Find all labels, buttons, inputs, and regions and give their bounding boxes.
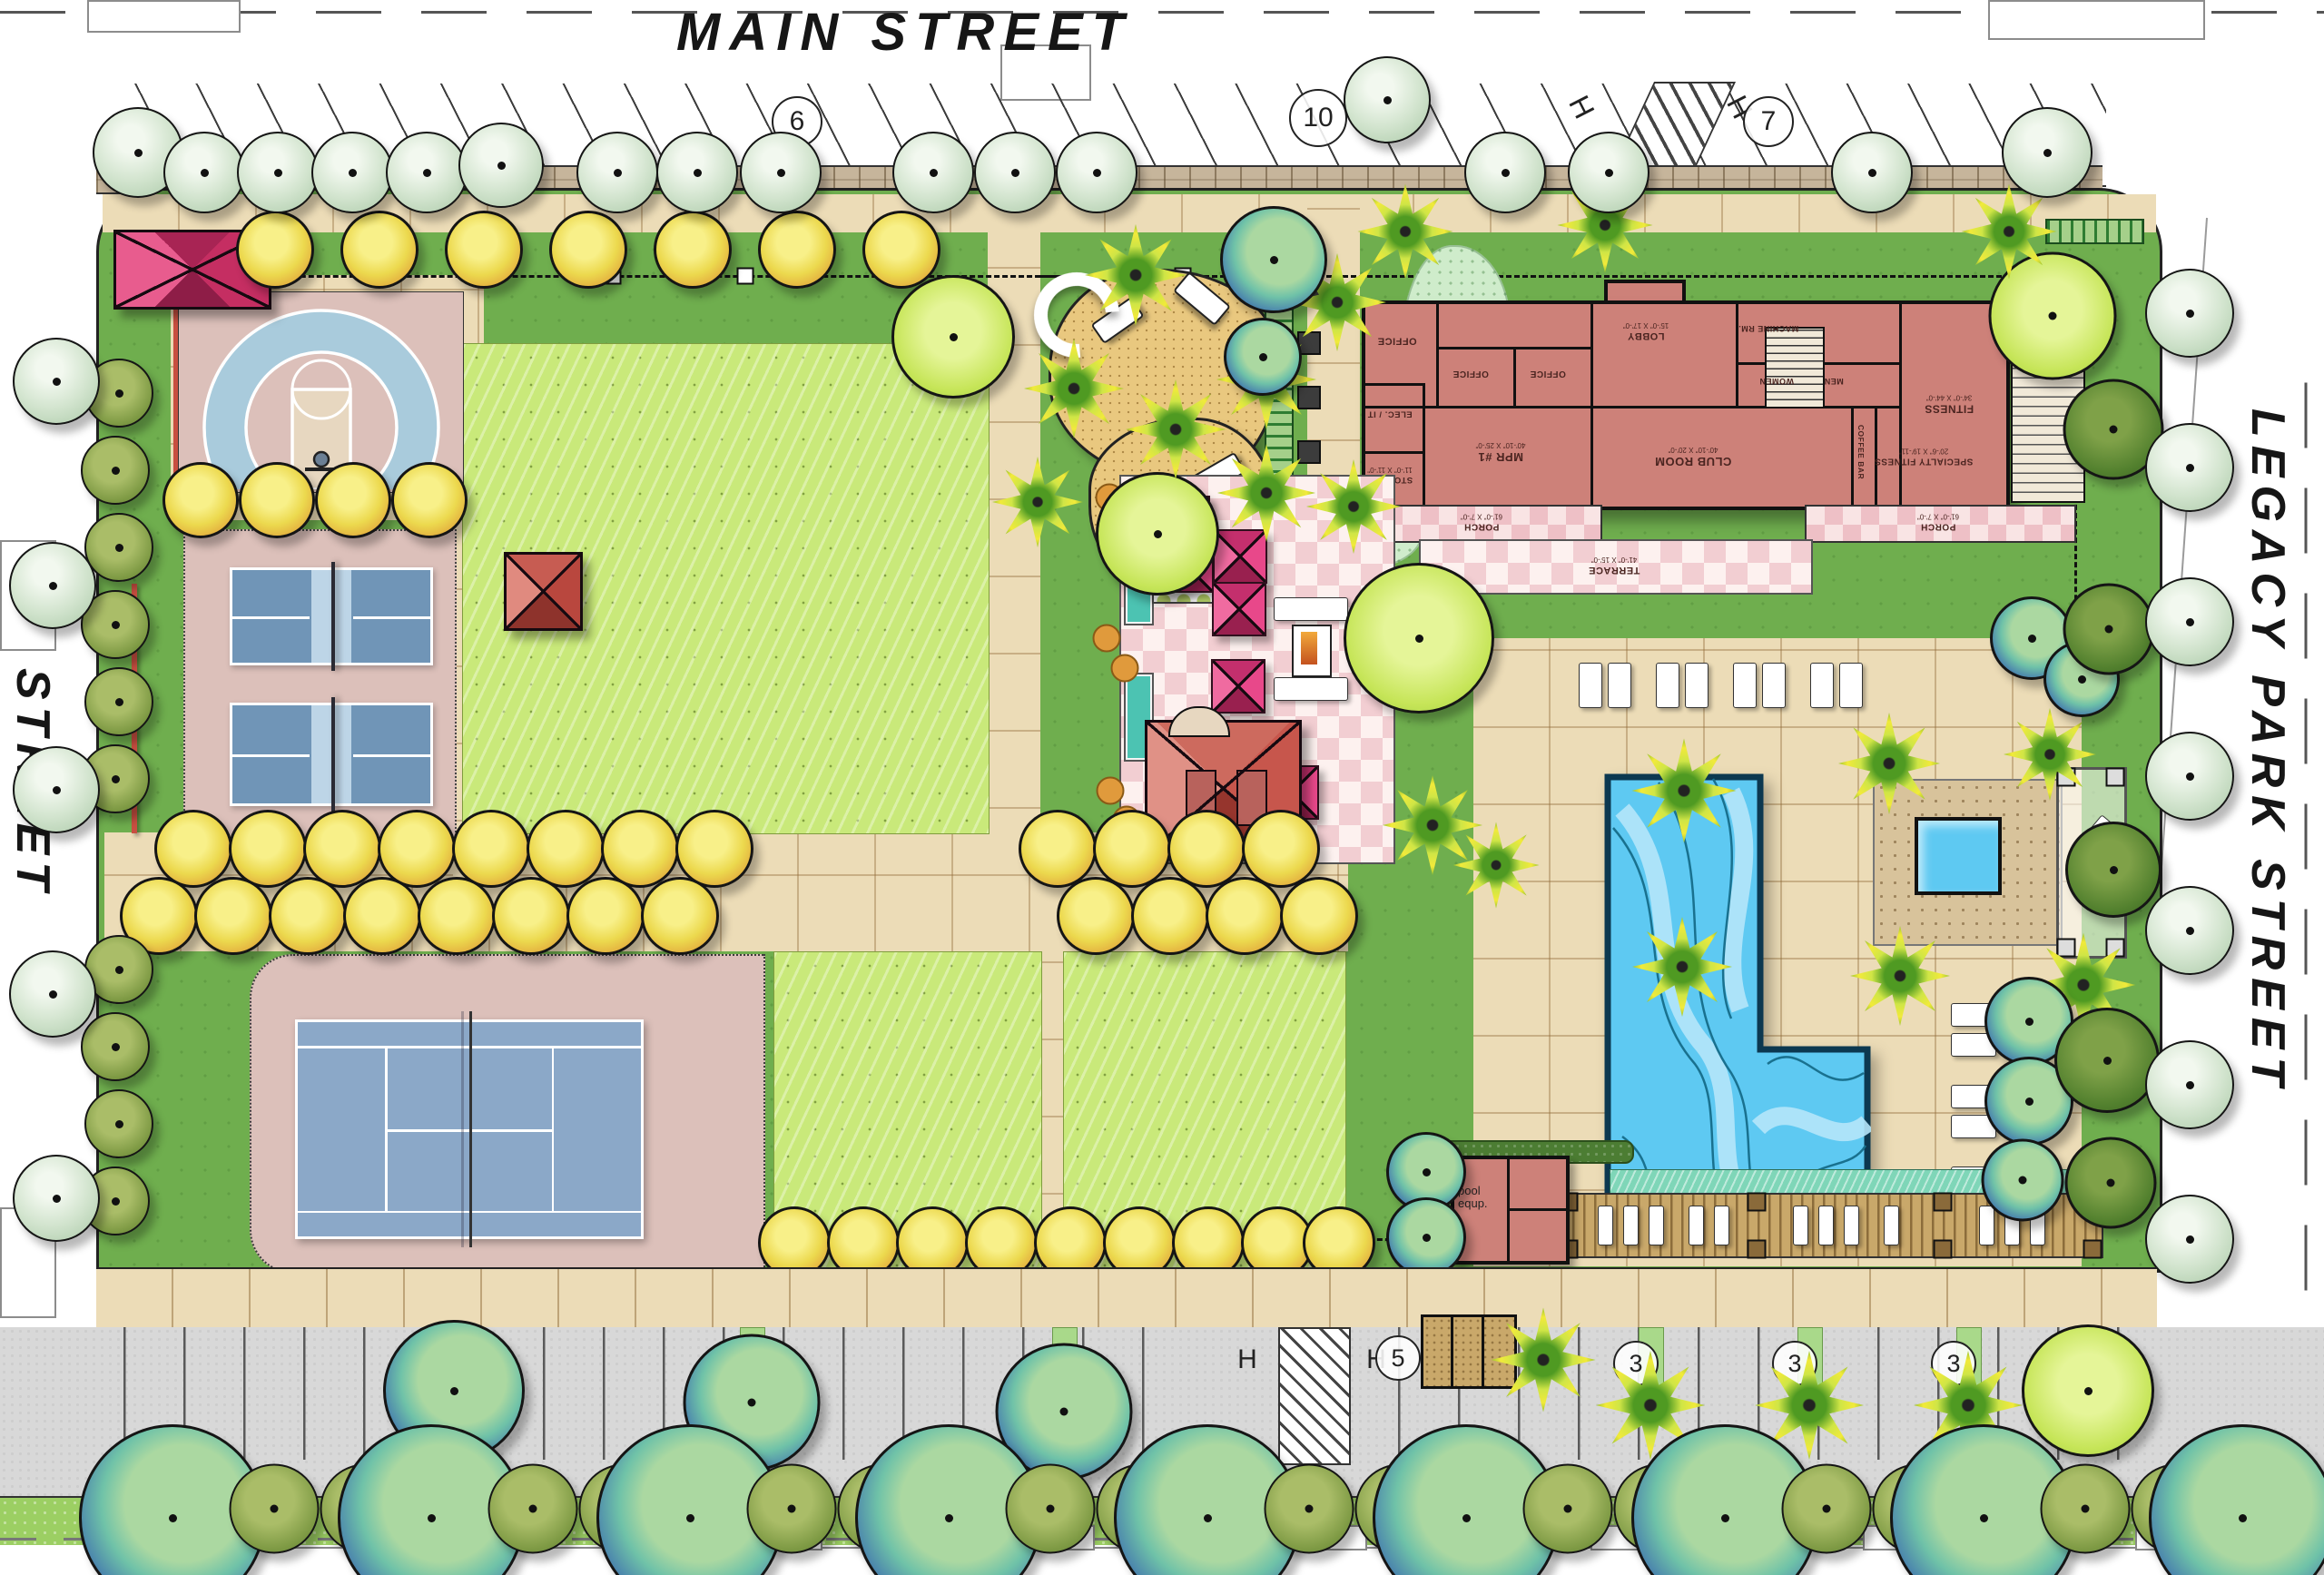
lounge-chair (1714, 1206, 1729, 1245)
ornamental-tree (1224, 318, 1302, 396)
bbq-grill (1297, 440, 1321, 464)
lounge-chair (1608, 663, 1631, 708)
shade-tree (269, 877, 347, 955)
canopy-tree (2022, 1324, 2154, 1457)
shade-tree (229, 810, 307, 888)
shade-tree (492, 877, 570, 955)
palm-tree (1085, 224, 1187, 326)
lounge-sofa (1274, 677, 1348, 701)
shade-tree (340, 211, 419, 289)
shade-tree (1167, 810, 1246, 888)
stall-count-badge: 10 (1289, 89, 1347, 147)
street-label-legacy-park: LEGACY PARK STREET (2240, 409, 2295, 1094)
shade-tree (418, 877, 496, 955)
terrace-label: TERRACE41'-0" X 15'-0" (1589, 556, 1640, 576)
palm-tree (1838, 713, 1940, 814)
lounge-chair (1818, 1206, 1834, 1245)
spa (1915, 817, 2002, 895)
stall-count-badge: 5 (1375, 1335, 1421, 1381)
fruit-tree (1093, 625, 1121, 653)
parkway-tree (1006, 1464, 1096, 1554)
street-tree (9, 950, 96, 1038)
court-line (353, 616, 430, 619)
wall (1451, 1317, 1453, 1386)
pickleball-court (230, 703, 433, 806)
lounge-chair (1979, 1206, 1994, 1245)
umbrella-table (1213, 529, 1267, 584)
tennis-court (295, 1019, 644, 1239)
pergola-post (1934, 1240, 1953, 1259)
street-tree (386, 132, 468, 213)
room-label-office: OFFICE (1377, 335, 1416, 347)
handicap-hatch-bottom (1278, 1327, 1351, 1465)
curb-box (87, 0, 241, 33)
lounge-chair (1839, 663, 1863, 708)
shade-tree (391, 462, 468, 538)
vine-trellis (2045, 219, 2144, 244)
porch-label: PORCH61'-0" X 7'-0" (1917, 513, 1959, 532)
palm-tree (2004, 708, 2096, 801)
trellis-post (2057, 939, 2076, 958)
palm-tree (1632, 917, 1732, 1017)
shade-tree (1057, 877, 1135, 955)
parkway-tree (2041, 1464, 2131, 1554)
street-centerline (0, 11, 2324, 14)
lounge-chair (1598, 1206, 1613, 1245)
street-tree (13, 746, 100, 833)
shade-tree (239, 462, 315, 538)
street-tree (2145, 1195, 2234, 1284)
lounge-chair (1649, 1206, 1664, 1245)
street-tree (2145, 577, 2234, 666)
parkway-tree (747, 1464, 837, 1554)
palm-tree (1217, 444, 1315, 542)
shade-tree (452, 810, 530, 888)
palm-tree (1358, 184, 1453, 280)
room-label-men: MEN (1824, 377, 1844, 386)
lounge-chair (1793, 1206, 1808, 1245)
shade-tree (549, 211, 627, 289)
street-tree (13, 1155, 100, 1242)
outdoor-fireplace (1292, 625, 1332, 677)
street-tree (1568, 132, 1649, 213)
street-tree (237, 132, 319, 213)
shade-tree (1280, 877, 1358, 955)
shade-tree (162, 462, 239, 538)
wall (1423, 383, 1425, 507)
mail-kiosk (1421, 1314, 1517, 1389)
evergreen-tree (81, 1012, 150, 1081)
palm-tree (1492, 1308, 1596, 1413)
shade-tree (566, 877, 645, 955)
street-tree (656, 132, 738, 213)
lounge-chair (1762, 663, 1786, 708)
parkway-tree (1265, 1464, 1354, 1554)
parkway-tree (230, 1464, 320, 1554)
room-label-office: OFFICE (1452, 368, 1489, 379)
shade-tree (1019, 810, 1097, 888)
room-label-club-room: CLUB ROOM40'-10" X 20'-0" (1655, 446, 1732, 468)
shade-tree (675, 810, 753, 888)
park-site: OFFICE OFFICE OFFICE ELEC. / IT STORAGE1… (96, 188, 2162, 1273)
shade-tree (758, 211, 836, 289)
shade-tree (236, 211, 314, 289)
evergreen-tree (81, 436, 150, 505)
palm-tree (992, 457, 1083, 547)
palm-tree (1126, 379, 1226, 479)
lounge-chair (1810, 663, 1834, 708)
street-tree (740, 132, 822, 213)
street-tree (1464, 132, 1546, 213)
parkway-tree (488, 1464, 578, 1554)
street-tree (2145, 886, 2234, 975)
trellis-post (2106, 768, 2125, 787)
street-tree (2145, 732, 2234, 821)
shade-gazebo (504, 552, 583, 631)
room-label-lobby: LOBBY15'-0" X 17'-0" (1623, 321, 1669, 341)
palm-tree (1024, 339, 1124, 438)
fire-glow (1301, 632, 1317, 664)
shade-tree (654, 211, 732, 289)
shade-tree (303, 810, 381, 888)
parkway-tree (1523, 1464, 1613, 1554)
pergola-post (1748, 1240, 1767, 1259)
shade-tree (343, 877, 421, 955)
handicap-marker: H (1237, 1344, 1257, 1375)
room-label-mpr: MPR #140'-10" X 25'-0" (1476, 441, 1526, 463)
street-tree (1344, 56, 1431, 143)
shade-tree (154, 810, 232, 888)
street-tree (458, 123, 544, 208)
street-label-main: MAIN STREET (676, 2, 1133, 63)
room-label-specialty-fitness: SPECIALTY FITNESS20'-6" X 19'-11" (1875, 448, 1974, 467)
street-tree (2002, 107, 2093, 198)
street-tree (311, 132, 393, 213)
street-tree (576, 132, 658, 213)
ornamental-tree (1982, 1139, 2064, 1222)
lounge-chair (1623, 1206, 1639, 1245)
court-line (353, 754, 430, 757)
pool-equipment-label: pool equp. (1458, 1185, 1512, 1211)
street-tree (2145, 1040, 2234, 1129)
umbrella-table (1212, 582, 1266, 636)
shade-tree (641, 877, 719, 955)
shade-tree (378, 810, 456, 888)
lounge-chair (1685, 663, 1709, 708)
room-label-elec-it: ELEC. / IT (1367, 409, 1412, 418)
court-line (232, 616, 310, 619)
canopy-tree (1344, 563, 1494, 714)
evergreen-tree (2054, 1008, 2160, 1113)
pergola-post (2083, 1240, 2102, 1259)
site-plan-canvas: MAIN STREET 6 10 H H 7 “B” STREET LEGACY… (0, 0, 2324, 1575)
wall (1365, 383, 1423, 386)
ornamental-tree (1220, 206, 1327, 313)
canopy-tree (891, 275, 1015, 399)
shade-tree (1093, 810, 1171, 888)
evergreen-tree (2063, 584, 2155, 675)
clubhouse-building (1362, 300, 2010, 510)
evergreen-tree (2065, 1137, 2157, 1229)
street-tree (9, 542, 96, 629)
stall-count-badge: 7 (1743, 96, 1794, 147)
shade-tree (315, 462, 391, 538)
room-label-fitness: FITNESS34'-0" X 44'-0" (1925, 394, 1974, 415)
shade-tree (862, 211, 940, 289)
street-tree (892, 132, 974, 213)
fruit-tree (1097, 777, 1125, 805)
palm-tree (1453, 822, 1540, 909)
parkway-tree (1782, 1464, 1872, 1554)
porch-label: PORCH61'-0" X 7'-0" (1461, 513, 1502, 532)
evergreen-tree (84, 1089, 153, 1158)
wall (1736, 304, 1738, 406)
canopy-tree (1096, 472, 1219, 596)
palm-tree (1850, 926, 1950, 1026)
room-label-women: WOMEN (1759, 377, 1794, 386)
evergreen-tree (84, 667, 153, 736)
lounge-chair (1844, 1206, 1859, 1245)
wall (1899, 304, 1902, 507)
shade-tree (601, 810, 679, 888)
palm-tree (1632, 739, 1737, 843)
street-tree (1831, 132, 1913, 213)
fruit-tree (1111, 655, 1139, 683)
shade-tree (1131, 877, 1209, 955)
pergola-post (1934, 1193, 1953, 1212)
wall (1513, 347, 1516, 406)
wall (1507, 1208, 1566, 1211)
wall (1365, 451, 1423, 454)
shade-tree (445, 211, 523, 289)
shade-tree (1242, 810, 1320, 888)
swimming-pool (1604, 773, 1871, 1218)
south-sidewalk (96, 1267, 2157, 1331)
pickleball-court (230, 567, 433, 665)
bbq-grill (1297, 386, 1321, 409)
street-tree (974, 132, 1056, 213)
room-label-machine-rm: MACHINE RM. (1738, 324, 1799, 333)
evergreen-tree (84, 513, 153, 582)
shade-tree (1206, 877, 1284, 955)
wall (1851, 406, 1854, 507)
wall (1482, 1317, 1484, 1386)
street-tree (163, 132, 245, 213)
stairwell (1765, 327, 1825, 409)
lounge-chair (1689, 1206, 1704, 1245)
shade-tree (194, 877, 272, 955)
palm-tree (1383, 775, 1482, 875)
umbrella-table (1211, 659, 1265, 714)
lounge-chair (1884, 1206, 1899, 1245)
pergola-post (1748, 1193, 1767, 1212)
palm-tree (1962, 184, 2057, 280)
lounge-chair (1579, 663, 1602, 708)
court-net (331, 697, 335, 812)
room-label-office: OFFICE (1530, 368, 1566, 379)
shade-tree (527, 810, 605, 888)
lounge-chair (1656, 663, 1679, 708)
curb-box (1988, 0, 2205, 40)
ornamental-tree (1386, 1197, 1466, 1277)
street-tree (1056, 132, 1137, 213)
street-tree (2145, 423, 2234, 512)
lounge-chair (1733, 663, 1757, 708)
room-label-coffee-bar: COFFEE BAR (1856, 425, 1865, 479)
court-line (232, 754, 310, 757)
palm-tree (1306, 459, 1401, 554)
street-tree (2145, 269, 2234, 358)
lounge-sofa (1274, 597, 1348, 621)
court-net (469, 1011, 472, 1247)
court-net (331, 562, 335, 671)
limit-marker (737, 268, 754, 285)
wall (1436, 304, 1439, 406)
evergreen-tree (2065, 822, 2162, 918)
street-tree (13, 338, 100, 425)
